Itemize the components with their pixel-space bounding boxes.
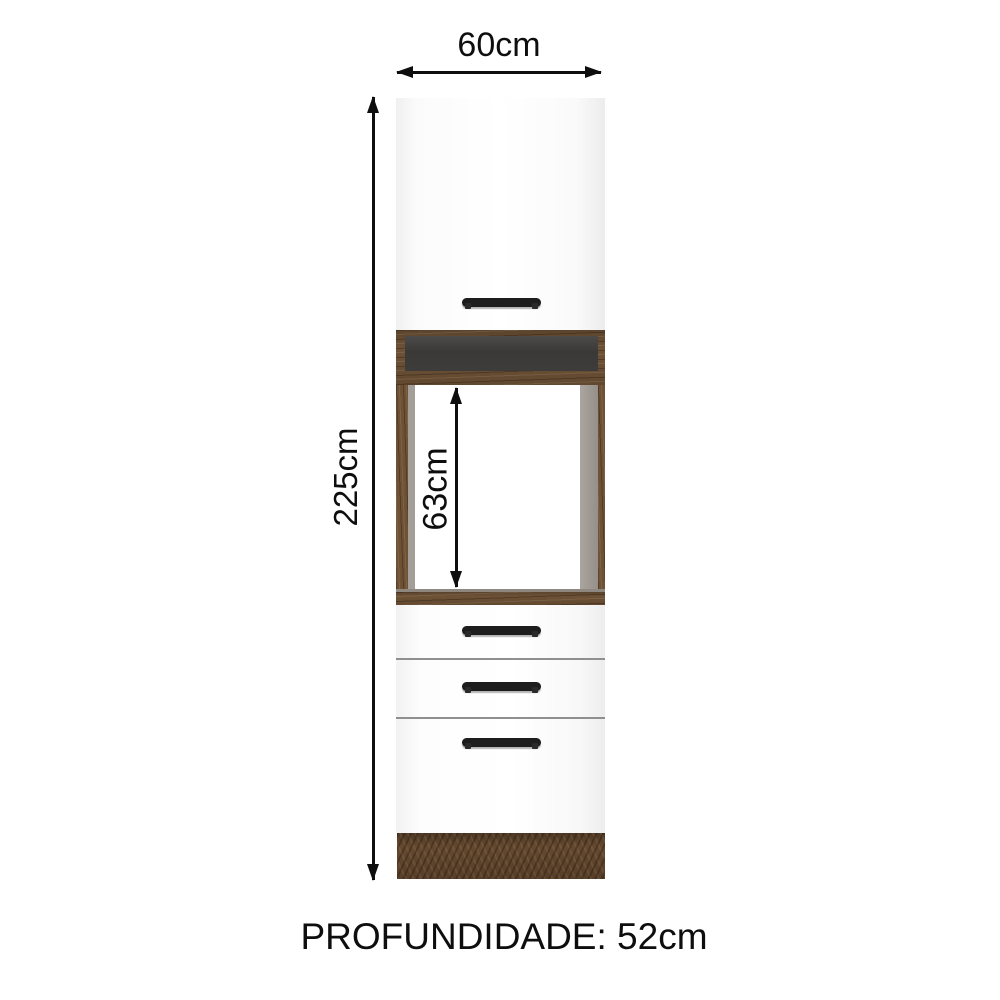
niche-bottom-shelf	[396, 592, 605, 605]
drawer-3-handle	[462, 738, 541, 747]
width-dimension-arrow	[397, 71, 601, 74]
niche-right-inner-wall	[580, 385, 598, 589]
niche-dimension-label: 63cm	[417, 447, 456, 530]
plinth-base	[397, 833, 605, 879]
drawer-2	[396, 660, 605, 717]
depth-label: PROFUNDIDADE: 52cm	[0, 916, 1000, 958]
arrowhead-down-icon	[367, 864, 379, 881]
open-recess	[405, 336, 598, 371]
upper-door	[396, 98, 605, 331]
drawer-1-handle	[462, 626, 541, 635]
height-dimension-label: 225cm	[327, 427, 365, 526]
height-dimension-arrow	[372, 97, 375, 880]
drawer-3	[396, 719, 605, 833]
arrowhead-left-icon	[396, 66, 413, 78]
arrowhead-down-icon	[450, 571, 462, 588]
arrowhead-up-icon	[450, 387, 462, 404]
niche-left-edge	[396, 385, 408, 589]
open-shelf-section	[396, 330, 605, 385]
oven-niche: 63cm	[396, 385, 605, 605]
arrowhead-up-icon	[367, 96, 379, 113]
drawer-stack	[396, 605, 605, 833]
niche-left-inner-wall	[408, 385, 415, 589]
product-dimension-diagram: 60cm 225cm 63cm	[0, 0, 1000, 1000]
drawer-1	[396, 605, 605, 658]
width-dimension-label: 60cm	[397, 26, 601, 65]
arrowhead-right-icon	[585, 66, 602, 78]
cabinet: 63cm	[396, 98, 605, 880]
door-handle	[462, 298, 541, 307]
drawer-2-handle	[462, 682, 541, 691]
niche-right-edge	[598, 385, 605, 589]
